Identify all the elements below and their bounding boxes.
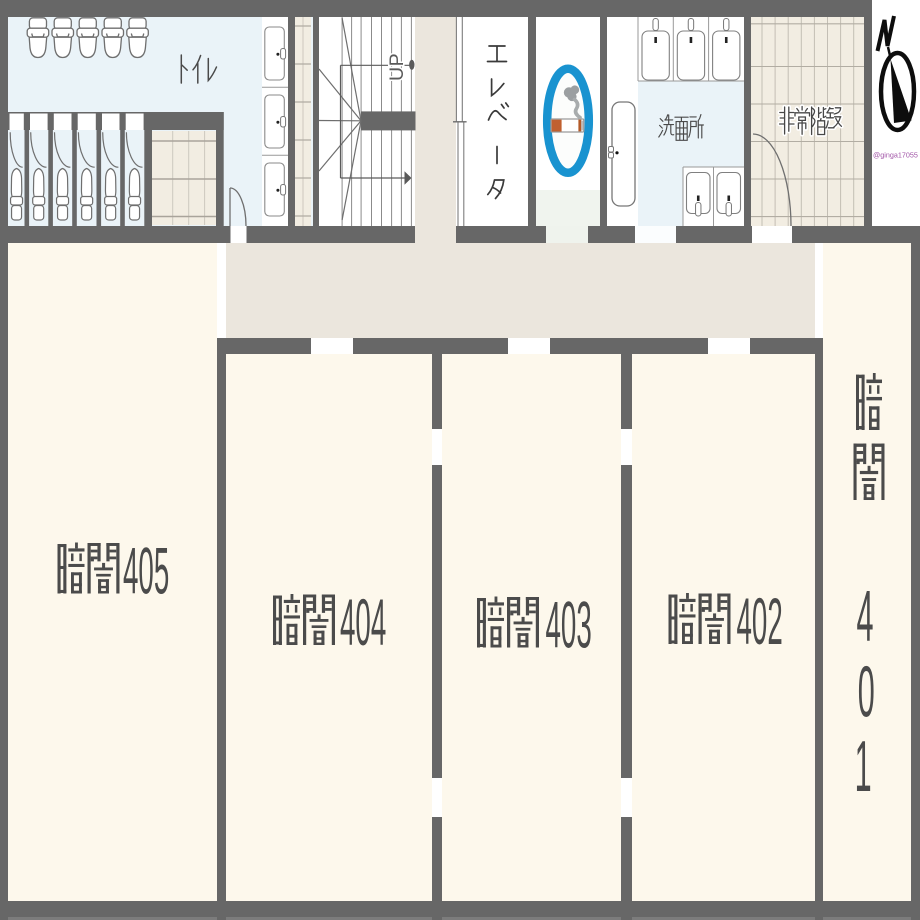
svg-text:4: 4 <box>857 576 874 657</box>
svg-text:@ginga17055: @ginga17055 <box>873 151 918 160</box>
svg-text:0: 0 <box>858 652 875 733</box>
svg-text:1: 1 <box>855 726 872 807</box>
svg-text:403: 403 <box>546 588 592 662</box>
svg-text:404: 404 <box>340 585 386 659</box>
svg-text:405: 405 <box>123 534 169 608</box>
svg-text:UP: UP <box>386 53 408 81</box>
svg-text:402: 402 <box>737 584 783 658</box>
